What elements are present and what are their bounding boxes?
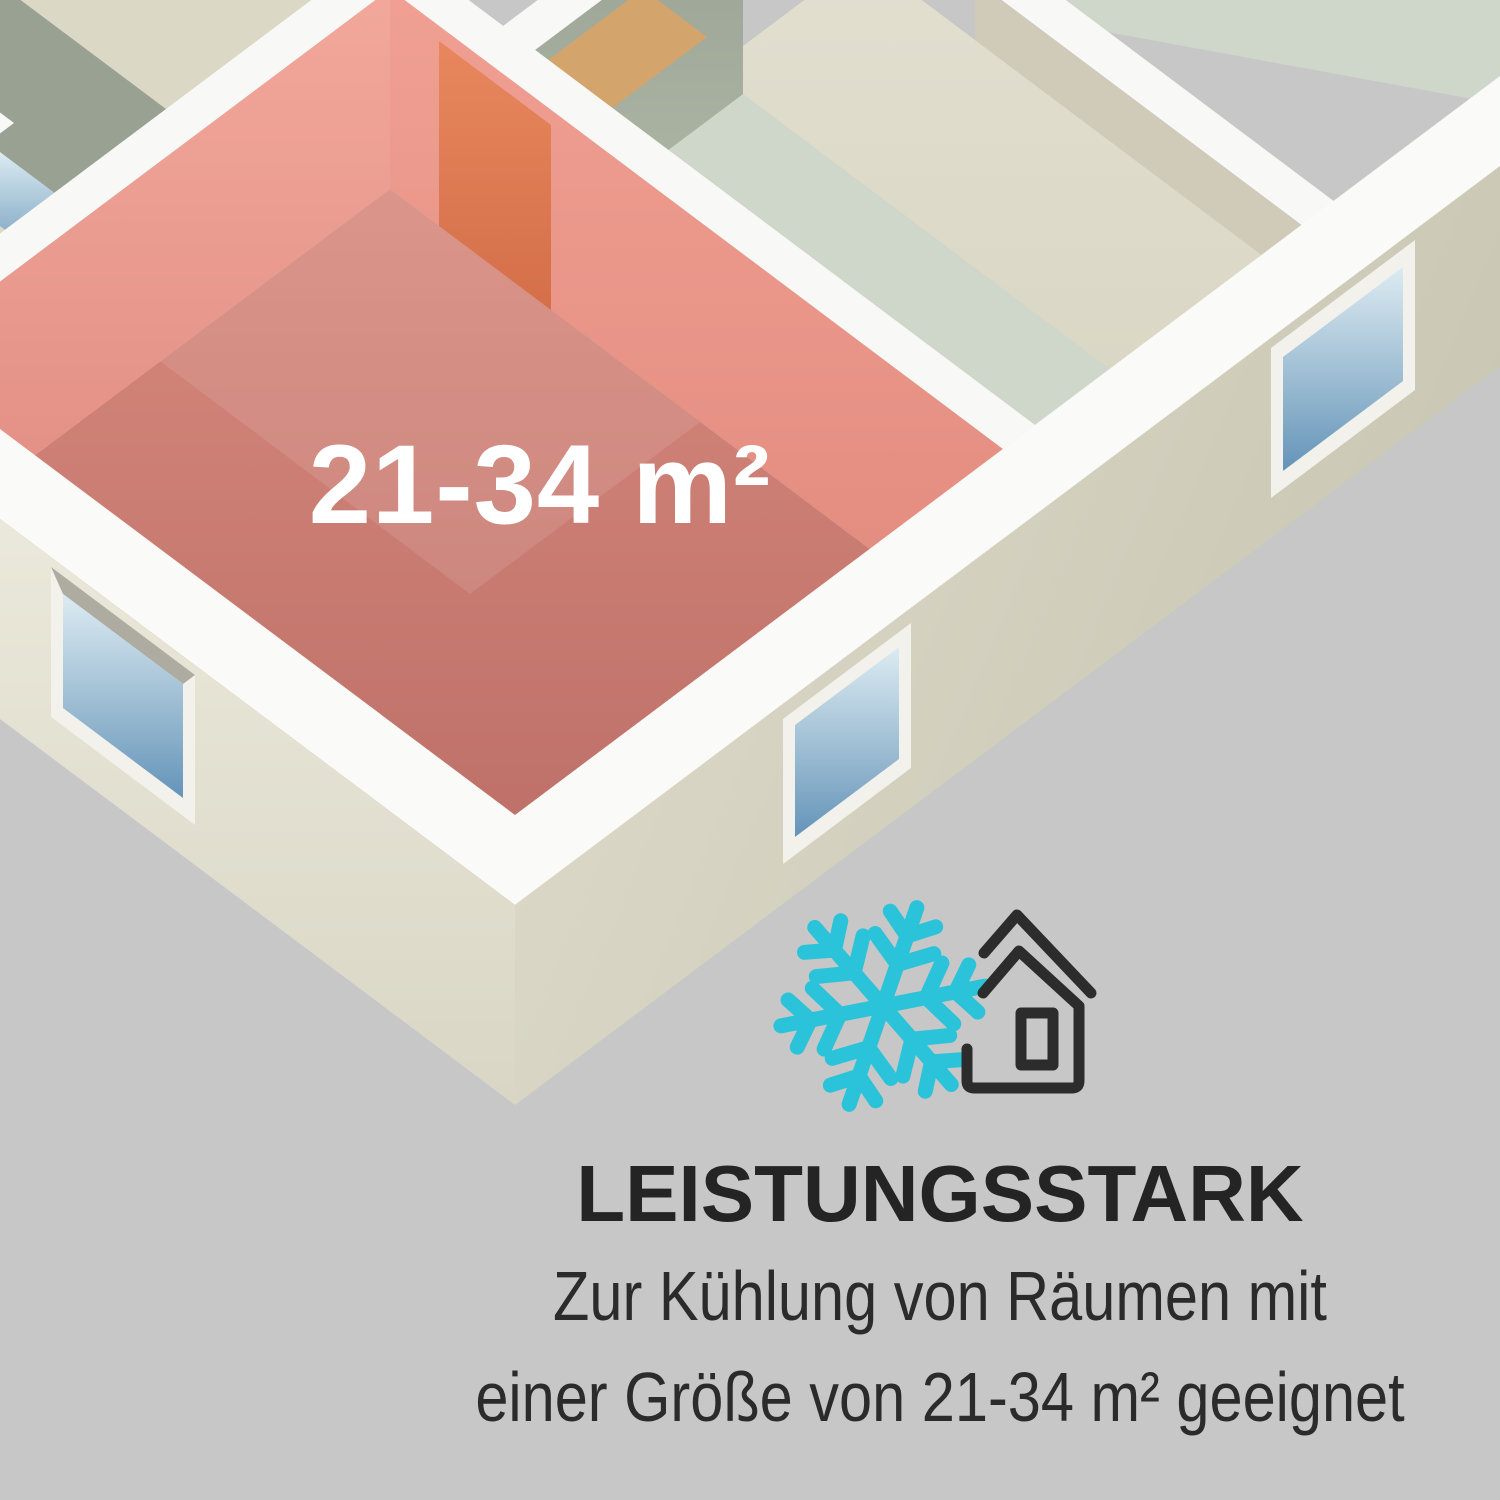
icon-row [770,885,1130,1105]
feature-description: Zur Kühlung von Räumen mit einer Größe v… [430,1246,1450,1448]
feature-description-line1: Zur Kühlung von Räumen mit [430,1246,1450,1347]
infographic: 21-34 m² [0,0,1500,1500]
house-icon [948,895,1108,1101]
house-door [1021,1013,1053,1065]
room-area-label: 21-34 m² [240,420,840,549]
feature-description-line2: einer Größe von 21-34 m² geeignet [430,1347,1450,1448]
feature-heading: LEISTUNGSSTARK [440,1148,1440,1240]
